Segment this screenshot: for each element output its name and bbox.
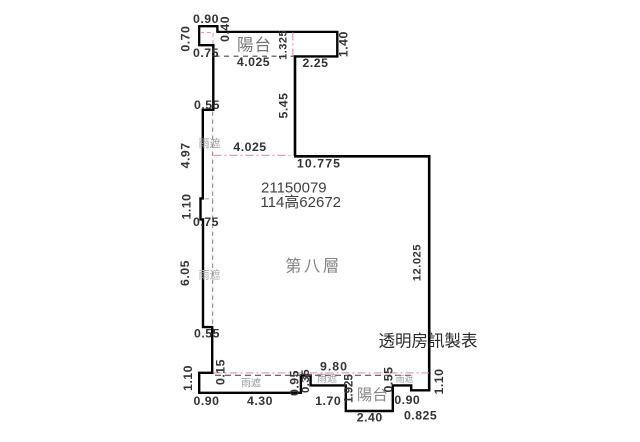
svg-text:9.80: 9.80 bbox=[320, 360, 348, 374]
svg-text:12.025: 12.025 bbox=[412, 244, 424, 281]
svg-text:1.10: 1.10 bbox=[180, 194, 194, 220]
svg-text:0.825: 0.825 bbox=[404, 409, 437, 423]
svg-text:雨遮: 雨遮 bbox=[317, 372, 337, 385]
svg-text:1.325: 1.325 bbox=[277, 30, 289, 60]
svg-text:第八層: 第八層 bbox=[285, 258, 342, 276]
svg-text:4.30: 4.30 bbox=[247, 394, 273, 408]
svg-text:雨遮: 雨遮 bbox=[396, 373, 414, 384]
svg-text:4.97: 4.97 bbox=[178, 142, 192, 168]
svg-text:10.775: 10.775 bbox=[297, 157, 341, 171]
svg-text:雨遮: 雨遮 bbox=[199, 268, 221, 282]
svg-text:0.75: 0.75 bbox=[193, 215, 219, 229]
svg-text:透明房訊製表: 透明房訊製表 bbox=[379, 332, 478, 351]
svg-text:0.35: 0.35 bbox=[300, 369, 312, 393]
svg-text:陽台: 陽台 bbox=[237, 35, 272, 54]
svg-text:0.15: 0.15 bbox=[214, 359, 228, 385]
svg-text:雨遮: 雨遮 bbox=[199, 136, 221, 150]
svg-text:0.90: 0.90 bbox=[193, 12, 219, 26]
svg-text:1.70: 1.70 bbox=[315, 394, 341, 408]
svg-text:1.10: 1.10 bbox=[181, 365, 195, 391]
svg-text:0.70: 0.70 bbox=[178, 26, 192, 52]
svg-text:0.55: 0.55 bbox=[194, 326, 220, 340]
svg-text:0.90: 0.90 bbox=[194, 394, 220, 408]
svg-text:6.05: 6.05 bbox=[178, 260, 192, 286]
svg-text:5.45: 5.45 bbox=[277, 93, 291, 119]
svg-text:2.25: 2.25 bbox=[303, 56, 329, 70]
svg-text:0.90: 0.90 bbox=[394, 393, 420, 407]
svg-text:1.10: 1.10 bbox=[432, 369, 446, 395]
svg-text:2.40: 2.40 bbox=[357, 410, 383, 424]
svg-text:1.40: 1.40 bbox=[337, 31, 351, 57]
svg-text:雨遮: 雨遮 bbox=[241, 377, 261, 390]
svg-text:4.025: 4.025 bbox=[233, 140, 266, 154]
svg-text:0.55: 0.55 bbox=[194, 98, 220, 112]
svg-text:0.40: 0.40 bbox=[218, 16, 232, 42]
svg-text:4.025: 4.025 bbox=[237, 55, 270, 69]
svg-text:陽台: 陽台 bbox=[357, 386, 388, 404]
svg-text:114高62672: 114高62672 bbox=[260, 194, 341, 211]
svg-text:1.925: 1.925 bbox=[344, 374, 356, 403]
svg-text:0.75: 0.75 bbox=[193, 46, 219, 60]
